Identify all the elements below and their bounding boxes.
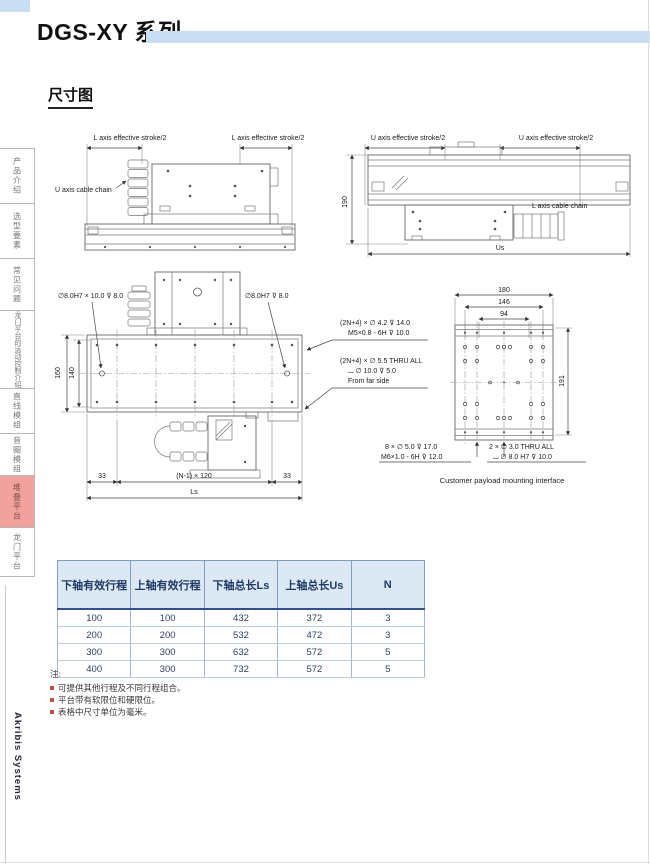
table-cell: 100	[58, 609, 131, 627]
table-header-cell: 下轴有效行程	[58, 561, 131, 610]
header-accent-bar-right	[146, 31, 650, 43]
table-cell: 300	[58, 644, 131, 661]
sidebar-item-product-intro[interactable]: 产品介绍	[0, 148, 34, 203]
spec-table: 下轴有效行程 上轴有效行程 下轴总长Ls 上轴总长Us N 100 100 43…	[57, 560, 425, 678]
dim-160: 160	[55, 367, 62, 379]
lower-cable-chain	[155, 416, 261, 478]
table-cell: 3	[351, 627, 424, 644]
sidebar-item-gantry-motion-control-intro[interactable]: 龙门平台的运动控制介绍	[0, 310, 34, 388]
table-cell: 732	[204, 661, 277, 678]
bullet-icon	[50, 698, 54, 702]
dim-33-right: 33	[283, 473, 291, 480]
sidebar-item-stacked-platform[interactable]: 堆叠平台	[0, 475, 34, 527]
svg-text:M5×0.8 - 6H ⊽ 10.0: M5×0.8 - 6H ⊽ 10.0	[348, 330, 409, 337]
svg-text:M6×1.0 - 6H ⊽ 12.0: M6×1.0 - 6H ⊽ 12.0	[381, 454, 442, 461]
note-text: 可提供其他行程及不同行程组合。	[58, 682, 186, 694]
hole-callout-2: (2N+4) × ∅ 5.5 THRU ALL ⌴ ∅ 10.0 ⊽ 5.0 F…	[305, 358, 428, 409]
table-cell: 5	[351, 661, 424, 678]
l-stroke-label-left: L axis effective stroke/2	[94, 135, 167, 142]
table-header-cell: 上轴总长Us	[278, 561, 351, 610]
dim-us: Us	[496, 245, 505, 252]
dim-33-left: 33	[98, 473, 106, 480]
dim-180: 180	[498, 287, 510, 294]
dim-pitch: (N-1) × 120	[176, 473, 212, 480]
drawing-front-view: L axis effective stroke/2 L axis effecti…	[55, 135, 304, 250]
u-axis-cable-chain	[128, 160, 148, 216]
notes-title: 注:	[50, 668, 186, 680]
table-header-cell: N	[351, 561, 424, 610]
l-cable-chain-label: L axis cable chain	[532, 203, 587, 210]
pin-label-left: ∅8.0H7 × 10.0 ⊽ 8.0	[58, 293, 123, 300]
svg-text:⌴ ∅ 10.0 ⊽ 5.0: ⌴ ∅ 10.0 ⊽ 5.0	[348, 368, 396, 375]
l-axis-cable-chain	[514, 212, 564, 240]
drawing-side-view: U axis effective stroke/2 U axis effecti…	[342, 135, 630, 257]
sidebar-item-voice-coil-module[interactable]: 音圈模组	[0, 433, 34, 475]
u-cable-chain-label: U axis cable chain	[55, 187, 112, 194]
pin-label-right: ∅8.0H7 ⊽ 8.0	[245, 293, 289, 300]
svg-text:8 × ∅ 5.0 ⊽ 17.0: 8 × ∅ 5.0 ⊽ 17.0	[385, 444, 437, 451]
table-header-cell: 上轴有效行程	[131, 561, 204, 610]
bullet-icon	[50, 686, 54, 690]
svg-text:From far side: From far side	[348, 378, 389, 385]
dim-191: 191	[559, 375, 566, 387]
note-item: 表格中尺寸单位为毫米。	[50, 706, 186, 718]
note-item: 可提供其他行程及不同行程组合。	[50, 682, 186, 694]
sidebar: 产品介绍 选型要素 常见问题 龙门平台的运动控制介绍 直线模组 音圈模组 堆叠平…	[0, 148, 35, 577]
drawing-plan-view: ∅8.0H7 × 10.0 ⊽ 8.0 ∅8.0H7 ⊽ 8.0 160 140	[55, 272, 428, 501]
sidebar-item-linear-module[interactable]: 直线模组	[0, 388, 34, 433]
dimension-drawings: L axis effective stroke/2 L axis effecti…	[40, 126, 650, 538]
table-cell: 472	[278, 627, 351, 644]
bullet-icon	[50, 710, 54, 714]
table-row: 100 100 432 372 3	[58, 609, 425, 627]
header-accent-bar-left	[0, 0, 30, 12]
svg-text:(2N+4) × ∅ 5.5 THRU ALL: (2N+4) × ∅ 5.5 THRU ALL	[340, 358, 423, 365]
dim-ls: Ls	[190, 489, 198, 496]
svg-text:⌴ ∅ 8.0 H7 ⊽ 10.0: ⌴ ∅ 8.0 H7 ⊽ 10.0	[493, 454, 552, 461]
table-cell: 3	[351, 609, 424, 627]
table-cell: 572	[278, 644, 351, 661]
note-item: 平台带有软限位和硬限位。	[50, 694, 186, 706]
table-cell: 200	[58, 627, 131, 644]
table-cell: 432	[204, 609, 277, 627]
svg-text:2 × ∅ 3.0 THRU ALL: 2 × ∅ 3.0 THRU ALL	[489, 444, 554, 451]
table-row: 300 300 632 572 5	[58, 644, 425, 661]
u-stroke-label-right: U axis effective stroke/2	[519, 135, 593, 142]
table-cell: 372	[278, 609, 351, 627]
dim-190: 190	[342, 196, 349, 208]
dim-94: 94	[500, 311, 508, 318]
drawing-payload-interface: 180 146 94	[379, 287, 586, 485]
sidebar-item-faq[interactable]: 常见问题	[0, 258, 34, 310]
notes: 注: 可提供其他行程及不同行程组合。 平台带有软限位和硬限位。 表格中尺寸单位为…	[50, 668, 186, 718]
note-text: 表格中尺寸单位为毫米。	[58, 706, 152, 718]
svg-text:(2N+4) × ∅ 4.2 ⊽ 14.0: (2N+4) × ∅ 4.2 ⊽ 14.0	[340, 320, 410, 327]
dim-146: 146	[498, 299, 510, 306]
brand-vertical-text: Akribis Systems	[12, 712, 23, 801]
hole-callout-1: (2N+4) × ∅ 4.2 ⊽ 14.0 M5×0.8 - 6H ⊽ 10.0	[307, 320, 428, 350]
payload-callout-1: 8 × ∅ 5.0 ⊽ 17.0 M6×1.0 - 6H ⊽ 12.0	[379, 444, 471, 462]
table-cell: 5	[351, 644, 424, 661]
table-row: 200 200 532 472 3	[58, 627, 425, 644]
table-header-cell: 下轴总长Ls	[204, 561, 277, 610]
table-cell: 200	[131, 627, 204, 644]
l-stroke-label-right: L axis effective stroke/2	[232, 135, 305, 142]
table-cell: 532	[204, 627, 277, 644]
note-text: 平台带有软限位和硬限位。	[58, 694, 160, 706]
dim-140: 140	[69, 367, 76, 379]
sidebar-item-selection-elements[interactable]: 选型要素	[0, 203, 34, 258]
table-cell: 300	[131, 644, 204, 661]
u-stroke-label-left: U axis effective stroke/2	[371, 135, 445, 142]
table-cell: 572	[278, 661, 351, 678]
page-edge-bottom	[0, 862, 650, 863]
payload-callout-2: 2 × ∅ 3.0 THRU ALL ⌴ ∅ 8.0 H7 ⊽ 10.0	[487, 444, 586, 462]
table-cell: 100	[131, 609, 204, 627]
section-title: 尺寸图	[48, 84, 93, 109]
payload-caption: Customer payload mounting interface	[440, 476, 565, 485]
page-left-rule	[5, 585, 6, 864]
table-cell: 632	[204, 644, 277, 661]
sidebar-item-gantry-platform[interactable]: 龙门平台	[0, 527, 34, 577]
